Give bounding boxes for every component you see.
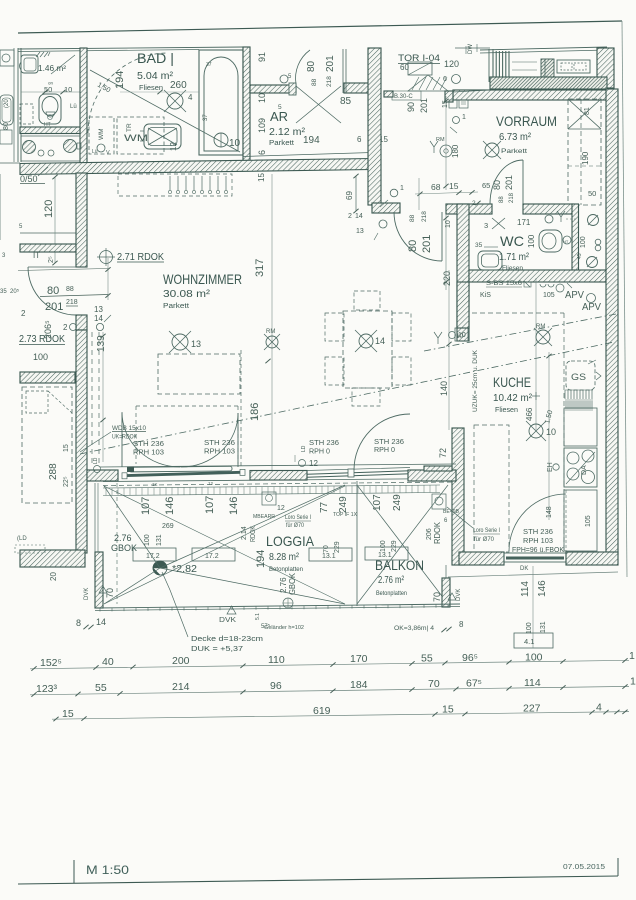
svg-text:DVK: DVK: [219, 617, 236, 624]
svg-text:6: 6: [357, 135, 362, 144]
svg-text:50: 50: [588, 189, 596, 198]
svg-text:77: 77: [319, 501, 330, 513]
svg-text:131: 131: [156, 534, 163, 546]
svg-text:80: 80: [3, 122, 10, 130]
svg-text:72: 72: [438, 448, 448, 458]
svg-text:LD: LD: [93, 457, 99, 464]
svg-text:Betonplatten: Betonplatten: [269, 566, 303, 573]
svg-text:80: 80: [47, 285, 59, 297]
svg-text:105: 105: [543, 292, 555, 299]
svg-text:2: 2: [63, 323, 68, 332]
svg-text:4.1: 4.1: [524, 637, 534, 646]
svg-text:8.28 m²: 8.28 m²: [269, 552, 300, 563]
svg-text:DW: DW: [468, 44, 474, 54]
svg-text:RM: RM: [266, 329, 275, 335]
svg-text:B.30-C: B.30-C: [394, 94, 413, 100]
svg-text:100: 100: [380, 540, 387, 552]
svg-text:201: 201: [45, 301, 63, 313]
svg-text:Loro Serie I: Loro Serie I: [473, 528, 500, 534]
svg-text:5.04 m²: 5.04 m²: [137, 70, 173, 82]
svg-text:15: 15: [449, 181, 459, 191]
svg-text:STH 236: STH 236: [374, 439, 404, 446]
svg-text:70: 70: [432, 592, 442, 602]
svg-text:STH 236: STH 236: [309, 440, 339, 447]
svg-text:80: 80: [407, 240, 419, 252]
svg-text:KiS: KiS: [480, 292, 491, 299]
svg-text:146: 146: [164, 497, 176, 515]
svg-text:DA: DA: [581, 465, 588, 475]
svg-text:35: 35: [475, 242, 483, 249]
svg-text:184: 184: [350, 679, 368, 691]
svg-text:RPH 103: RPH 103: [523, 536, 553, 545]
svg-text:214: 214: [172, 681, 190, 693]
svg-text:Parkett: Parkett: [163, 303, 189, 310]
svg-text:2.71 RDOK: 2.71 RDOK: [117, 252, 164, 263]
svg-text:1K: 1K: [152, 482, 158, 487]
svg-text:LD: LD: [301, 445, 307, 452]
svg-text:45: 45: [577, 253, 583, 259]
svg-text:5.1: 5.1: [255, 613, 261, 620]
svg-text:120: 120: [444, 59, 459, 69]
svg-text:(20: (20: [4, 99, 10, 108]
svg-text:für Ø70: für Ø70: [286, 523, 305, 529]
svg-text:Fliesen: Fliesen: [139, 85, 163, 92]
svg-text:20⁵: 20⁵: [10, 288, 20, 295]
svg-text:249: 249: [392, 494, 403, 511]
svg-text:*2.82: *2.82: [172, 564, 197, 575]
svg-text:3: 3: [484, 221, 488, 230]
svg-text:Betonplatten: Betonplatten: [376, 591, 407, 597]
svg-text:WM: WM: [98, 128, 105, 140]
svg-text:6: 6: [257, 150, 267, 155]
svg-text:100: 100: [33, 352, 48, 362]
svg-text:200: 200: [172, 655, 190, 667]
svg-text:Fliesen: Fliesen: [495, 407, 518, 414]
svg-text:1: 1: [629, 650, 635, 662]
svg-text:07.05.2015: 07.05.2015: [563, 862, 605, 871]
svg-text:WC: WC: [500, 233, 524, 249]
svg-text:201: 201: [421, 235, 433, 253]
svg-text:105: 105: [585, 515, 592, 527]
svg-text:123³: 123³: [36, 683, 58, 695]
svg-text:70: 70: [428, 678, 440, 690]
svg-text:10.42 m²: 10.42 m²: [493, 393, 533, 404]
svg-text:194: 194: [114, 71, 126, 89]
svg-text:2: 2: [472, 200, 476, 207]
svg-text:AR: AR: [270, 109, 288, 124]
svg-text:10: 10: [257, 93, 267, 103]
svg-text:218: 218: [326, 76, 333, 87]
svg-text:227: 227: [523, 702, 541, 714]
svg-text:171: 171: [517, 218, 531, 227]
svg-text:466: 466: [525, 407, 534, 421]
svg-text:20: 20: [49, 572, 58, 581]
svg-text:DUK = +5,37: DUK = +5,37: [191, 644, 243, 653]
svg-text:14: 14: [94, 314, 103, 323]
svg-text:100: 100: [525, 652, 543, 664]
svg-text:TOR I-04: TOR I-04: [398, 53, 440, 63]
svg-text:114: 114: [524, 677, 541, 689]
svg-text:55: 55: [421, 653, 433, 665]
svg-text:MBEARR: MBEARR: [253, 514, 275, 520]
svg-text:37: 37: [206, 62, 212, 68]
svg-text:67⁵: 67⁵: [466, 678, 482, 690]
svg-text:RDOK: RDOK: [250, 526, 257, 542]
svg-text:15: 15: [442, 703, 454, 715]
svg-text:2.76: 2.76: [279, 577, 288, 593]
svg-text:IT: IT: [33, 251, 40, 260]
svg-text:180: 180: [451, 144, 460, 158]
svg-text:UZUK= 25cm u. DUK: UZUK= 25cm u. DUK: [473, 350, 479, 412]
svg-text:RPH 103: RPH 103: [133, 450, 164, 457]
svg-text:110: 110: [268, 654, 285, 666]
svg-text:194: 194: [303, 135, 320, 146]
svg-text:10: 10: [445, 220, 452, 228]
svg-text:120: 120: [43, 200, 55, 218]
svg-text:100: 100: [144, 534, 151, 546]
svg-text:114: 114: [520, 581, 531, 597]
svg-text:2.12 m²: 2.12 m²: [269, 126, 305, 138]
svg-text:194: 194: [255, 550, 267, 568]
svg-text:HT: HT: [563, 239, 569, 244]
svg-text:DVK: DVK: [84, 588, 90, 600]
svg-text:218: 218: [509, 192, 515, 203]
svg-text:220: 220: [442, 271, 452, 286]
svg-text:100: 100: [527, 234, 536, 248]
svg-text:218: 218: [421, 211, 428, 222]
svg-text:12: 12: [208, 481, 214, 486]
svg-text:190: 190: [581, 151, 590, 165]
svg-text:STH 236: STH 236: [523, 527, 553, 536]
svg-text:40: 40: [102, 656, 114, 668]
svg-text:Lü: Lü: [70, 104, 77, 110]
svg-text:2: 2: [348, 213, 352, 220]
svg-text:Fliesen: Fliesen: [502, 265, 523, 272]
svg-text:RM: RM: [436, 137, 445, 143]
svg-text:17.2: 17.2: [205, 553, 219, 560]
svg-text:STH 236: STH 236: [204, 440, 235, 447]
svg-text:249: 249: [338, 496, 349, 513]
svg-text:206: 206: [426, 528, 433, 540]
svg-text:131: 131: [540, 621, 547, 633]
svg-text:13: 13: [191, 339, 201, 349]
svg-text:70: 70: [105, 588, 115, 598]
svg-text:229: 229: [334, 541, 341, 553]
svg-text:1: 1: [400, 185, 404, 192]
svg-text:STH 236: STH 236: [133, 441, 164, 448]
svg-text:2.14: 2.14: [241, 526, 248, 540]
svg-text:317: 317: [254, 259, 266, 277]
svg-text:91: 91: [257, 52, 267, 62]
svg-text:100: 100: [526, 622, 533, 634]
svg-text:8: 8: [76, 618, 81, 628]
svg-text:14: 14: [355, 213, 363, 220]
svg-text:OK=3,86m| 4: OK=3,86m| 4: [394, 626, 435, 632]
svg-text:12: 12: [309, 459, 318, 468]
svg-text:201: 201: [419, 98, 429, 113]
svg-text:50: 50: [44, 85, 52, 94]
svg-text:RDOK: RDOK: [433, 521, 442, 544]
svg-text:269: 269: [162, 523, 174, 530]
svg-text:BE=9B: BE=9B: [443, 509, 460, 515]
svg-text:1: 1: [462, 114, 466, 121]
svg-text:260: 260: [170, 80, 187, 91]
svg-text:4: 4: [596, 701, 602, 713]
svg-text:170: 170: [350, 653, 368, 665]
svg-text:M 1:50: M 1:50: [86, 863, 129, 877]
svg-text:GS: GS: [571, 372, 586, 382]
svg-text:90: 90: [406, 102, 416, 112]
svg-text:14: 14: [96, 617, 106, 627]
svg-text:107: 107: [140, 497, 152, 515]
svg-text:UK=RDOK: UK=RDOK: [112, 434, 138, 441]
svg-text:Lü: Lü: [92, 149, 98, 155]
svg-text:80: 80: [306, 60, 317, 72]
svg-text:96: 96: [270, 680, 282, 692]
svg-text:13.1: 13.1: [378, 552, 392, 559]
svg-text:14: 14: [375, 336, 385, 346]
svg-text:15: 15: [257, 173, 266, 182]
svg-text:S-BS 15x6: S-BS 15x6: [486, 281, 523, 287]
svg-text:81: 81: [584, 107, 591, 115]
svg-text:TOP IF 1X: TOP IF 1X: [333, 512, 358, 518]
svg-text:RPH 0: RPH 0: [309, 449, 330, 456]
svg-text:22⁵: 22⁵: [63, 476, 70, 487]
svg-text:201: 201: [504, 175, 514, 190]
svg-text:107: 107: [372, 494, 383, 511]
svg-text:6.73 m²: 6.73 m²: [499, 131, 531, 143]
svg-text:35: 35: [0, 289, 7, 295]
svg-text:2.76: 2.76: [114, 533, 132, 543]
svg-text:69: 69: [345, 191, 354, 200]
svg-text:100: 100: [580, 236, 587, 248]
svg-text:12: 12: [169, 142, 178, 151]
svg-text:APV: APV: [565, 290, 584, 301]
svg-text:288: 288: [48, 463, 59, 480]
svg-text:10: 10: [458, 332, 466, 339]
svg-text:DVK: DVK: [456, 589, 462, 601]
svg-text:88: 88: [499, 196, 505, 203]
svg-text:13.1: 13.1: [322, 553, 336, 560]
svg-text:148: 148: [546, 506, 553, 518]
svg-text:BAD |: BAD |: [137, 50, 174, 66]
svg-text:2.76 m²: 2.76 m²: [378, 575, 405, 586]
svg-text:2: 2: [21, 309, 26, 318]
svg-text:RPH 0: RPH 0: [374, 447, 395, 454]
svg-text:GBOK: GBOK: [288, 572, 297, 595]
svg-text:KUCHE: KUCHE: [493, 374, 531, 390]
svg-text:57⁵: 57⁵: [261, 623, 271, 630]
svg-text:107: 107: [204, 496, 216, 514]
svg-text:RPH 103: RPH 103: [204, 449, 235, 456]
svg-text:Parkett: Parkett: [501, 148, 527, 155]
svg-text:55: 55: [95, 682, 107, 694]
svg-text:37: 37: [203, 114, 209, 121]
svg-text:Parkett: Parkett: [269, 140, 294, 147]
svg-text:30.08 m²: 30.08 m²: [163, 288, 211, 300]
svg-text:88: 88: [66, 286, 74, 293]
svg-text:13: 13: [356, 228, 364, 235]
svg-text:APV: APV: [582, 302, 601, 313]
svg-text:DK: DK: [520, 566, 528, 572]
svg-text:1.71 m²: 1.71 m²: [499, 252, 530, 263]
svg-text:13: 13: [94, 305, 103, 314]
svg-text:619: 619: [313, 705, 331, 717]
svg-text:229: 229: [391, 540, 398, 552]
svg-text:68: 68: [431, 182, 441, 192]
svg-text:96⁵: 96⁵: [462, 652, 478, 664]
svg-text:8: 8: [459, 620, 464, 629]
svg-text:65: 65: [482, 181, 490, 190]
svg-text:15: 15: [62, 708, 74, 720]
svg-text:4: 4: [188, 93, 193, 102]
svg-text:6: 6: [443, 76, 447, 83]
svg-text:201: 201: [325, 55, 336, 72]
svg-text:(LD: (LD: [17, 536, 27, 542]
svg-text:109: 109: [257, 118, 267, 133]
svg-text:V: V: [106, 150, 110, 156]
svg-text:88: 88: [409, 214, 416, 222]
svg-text:17.2: 17.2: [146, 553, 160, 560]
svg-text:146: 146: [228, 497, 240, 515]
svg-text:WOHNZIMMER: WOHNZIMMER: [163, 271, 242, 287]
svg-text:152⁵: 152⁵: [40, 657, 62, 669]
svg-text:206⁵: 206⁵: [43, 320, 53, 339]
svg-text:2⁵: 2⁵: [48, 256, 55, 263]
svg-text:85: 85: [340, 96, 352, 107]
svg-text:10: 10: [546, 427, 556, 437]
svg-text:80: 80: [492, 180, 502, 190]
svg-text:LOGGIA: LOGGIA: [266, 533, 315, 549]
svg-text:70: 70: [323, 545, 330, 553]
svg-text:TR: TR: [126, 123, 133, 132]
svg-text:12: 12: [277, 505, 285, 512]
svg-text:für Ø70: für Ø70: [474, 537, 495, 543]
svg-text:140: 140: [439, 381, 449, 396]
svg-text:Decke d=18-23cm: Decke d=18-23cm: [191, 634, 263, 643]
svg-text:1: 1: [630, 676, 636, 688]
svg-text:0/50: 0/50: [20, 174, 38, 184]
svg-text:WDB 15x10: WDB 15x10: [112, 425, 146, 432]
svg-text:15: 15: [63, 444, 70, 452]
svg-text:88: 88: [311, 78, 318, 86]
svg-text:VORRAUM: VORRAUM: [496, 113, 557, 129]
svg-text:218: 218: [66, 299, 78, 306]
svg-text:Loro Serie I: Loro Serie I: [285, 515, 311, 521]
svg-text:146: 146: [537, 580, 548, 597]
svg-text:10: 10: [64, 85, 72, 94]
svg-text:RM: RM: [536, 324, 545, 330]
